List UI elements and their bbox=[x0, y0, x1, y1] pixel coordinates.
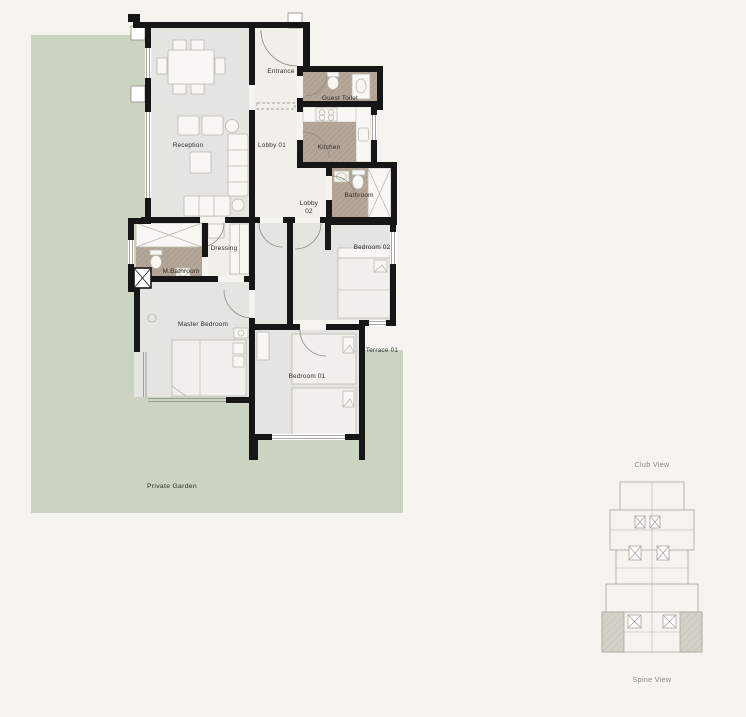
floor-plan-page: Entrance Guest Toilet Reception Lobby 01… bbox=[0, 0, 746, 717]
floor-plan-canvas: Entrance Guest Toilet Reception Lobby 01… bbox=[0, 0, 746, 717]
dressing-label: Dressing bbox=[211, 245, 238, 252]
guest-toilet-label: Guest Toilet bbox=[322, 95, 358, 102]
lobby01-label: Lobby 01 bbox=[258, 142, 286, 149]
bathroom-label: Bathroom bbox=[344, 192, 373, 199]
terrace-label: Terrace 01 bbox=[366, 347, 398, 354]
entrance-label: Entrance bbox=[267, 68, 294, 75]
kitchen-label: Kitchen bbox=[318, 144, 341, 151]
reception-label: Reception bbox=[173, 142, 204, 149]
club-view-label: Club View bbox=[635, 460, 670, 469]
kitchen-floor bbox=[303, 122, 356, 162]
bedroom02-bed bbox=[338, 248, 390, 318]
master-bedroom-label: Master Bedroom bbox=[178, 321, 228, 328]
master-bathroom-label: M.Bathroom bbox=[163, 268, 200, 275]
private-garden-label: Private Garden bbox=[147, 483, 197, 490]
hallway-floor bbox=[255, 223, 287, 324]
bedroom01-label: Bedroom 01 bbox=[289, 373, 326, 380]
spine-view-label: Spine View bbox=[633, 675, 672, 684]
bedroom02-label: Bedroom 02 bbox=[354, 244, 391, 251]
shaft-box bbox=[134, 268, 151, 288]
dashed-opening bbox=[257, 103, 295, 109]
lobby02-label-line1: Lobby bbox=[300, 200, 319, 207]
lobby02-label-line2: 02 bbox=[305, 208, 313, 215]
entrance-lobby01-floor bbox=[255, 28, 297, 217]
